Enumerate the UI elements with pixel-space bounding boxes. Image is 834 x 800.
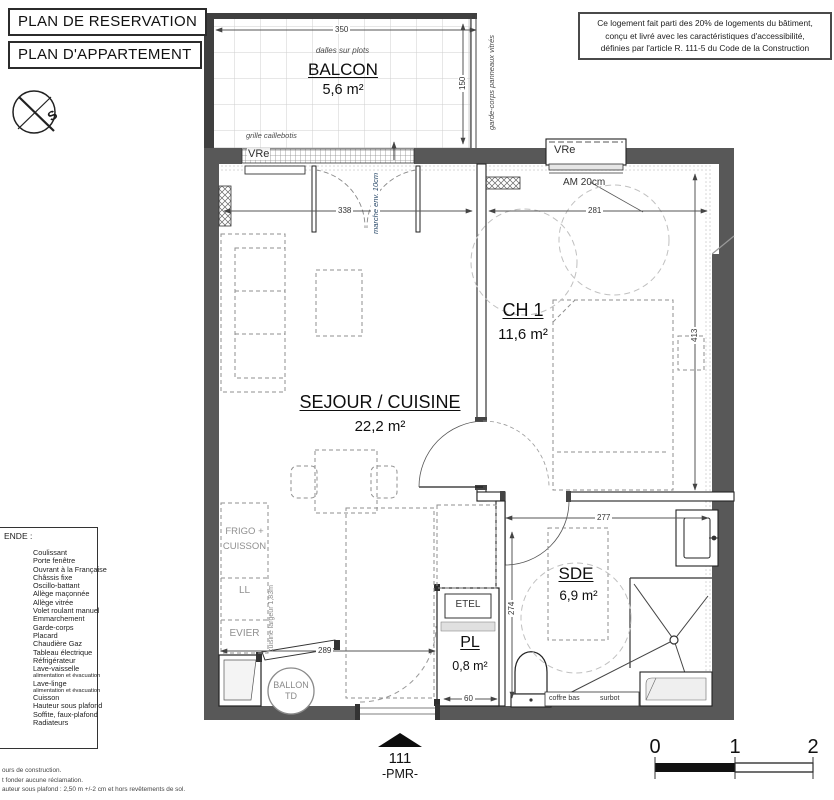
dim-ch1-depth: 413 xyxy=(690,327,699,344)
dim-entry-depth: 274 xyxy=(507,600,516,617)
legend-item: Lave-linge xyxy=(33,680,143,688)
surbot-label: surbot xyxy=(600,695,619,702)
floor-plan-page: { "titles": { "reservation": "PLAN DE RE… xyxy=(0,0,834,800)
dim-ch1-width: 281 xyxy=(586,206,603,215)
plan-reservation-title: PLAN DE RESERVATION xyxy=(8,8,207,36)
lot-number: 111 xyxy=(375,750,425,767)
legend-items: Coulissant Porte fenêtre Ouvrant à la Fr… xyxy=(33,549,143,727)
fine-print-line: ours de construction. xyxy=(2,766,185,776)
vre-shutter-label-left: VRe xyxy=(247,148,270,160)
room-balcon-area: 5,6 m² xyxy=(302,82,384,98)
room-sejour-name: SEJOUR / CUISINE xyxy=(295,392,465,413)
dim-sde-width: 277 xyxy=(595,513,612,522)
accessibility-note-line: définies par l'article R. 111-5 du Code … xyxy=(582,42,828,55)
room-sde-name: SDE xyxy=(541,564,611,584)
marche-label: marche env. 10cm xyxy=(371,172,380,235)
frigo-label: FRIGO + xyxy=(221,526,268,537)
balcony-dalles-label: dalles sur plots xyxy=(300,46,385,55)
radiators xyxy=(219,177,520,226)
ballon-label: BALLON xyxy=(266,680,316,690)
coffre-bas-label: coffre bas xyxy=(549,695,580,702)
dim-pl-width: 60 xyxy=(462,694,475,703)
garde-corps-label: garde-corps panneaux vitrés xyxy=(487,35,496,130)
room-balcon-name: BALCON xyxy=(302,60,384,80)
accessibility-note: Ce logement fait parti des 20% de logeme… xyxy=(578,12,832,60)
accessibility-note-line: conçu et livré avec les caractéristiques… xyxy=(582,30,828,43)
scale-bar xyxy=(655,757,813,779)
dim-kitchen-width: 289 xyxy=(316,646,333,655)
grille-caillebotis-label: grille caillebotis xyxy=(246,131,297,140)
fine-print: ours de construction. t fonder aucune ré… xyxy=(2,766,185,795)
lave-linge-label: LL xyxy=(221,585,268,596)
plan-apartment-title: PLAN D'APPARTEMENT xyxy=(8,41,202,69)
etel-label: ETEL xyxy=(445,599,491,610)
room-pl-area: 0,8 m² xyxy=(438,659,502,673)
vre-shutter-label-right: VRe xyxy=(553,144,576,156)
fine-print-line: auteur sous plafond : 2,50 m +/-2 cm et … xyxy=(2,785,185,795)
room-ch1-area: 11,6 m² xyxy=(478,326,568,343)
room-sejour-area: 22,2 m² xyxy=(295,418,465,435)
fine-print-line: t fonder aucune réclamation. xyxy=(2,776,185,786)
legend-title: ENDE : xyxy=(4,531,32,541)
entrance-door xyxy=(355,626,440,720)
cuisine-largeur-label: cuisine largeur 1,83m xyxy=(268,585,275,652)
dim-balcony-depth: 150 xyxy=(458,75,467,92)
am20-label: AM 20cm xyxy=(563,177,605,188)
room-pl-name: PL xyxy=(442,634,498,652)
accessibility-note-line: Ce logement fait parti des 20% de logeme… xyxy=(582,17,828,30)
dim-sejour-width: 338 xyxy=(336,206,353,215)
scale-tick-0: 0 xyxy=(645,736,665,759)
ballon-td-label: TD xyxy=(266,691,316,701)
cuisson-label: CUISSON xyxy=(221,541,268,552)
dim-balcony-width: 350 xyxy=(333,25,350,34)
scale-tick-1: 1 xyxy=(725,736,745,759)
pmr-tag: -PMR- xyxy=(370,767,430,781)
legend-item: Lave-vaisselle xyxy=(33,665,143,673)
entrance-arrow-icon xyxy=(378,733,422,747)
room-ch1-name: CH 1 xyxy=(488,300,558,321)
legend-item: Radiateurs xyxy=(33,719,143,727)
scale-tick-2: 2 xyxy=(803,736,823,759)
room-sde-area: 6,9 m² xyxy=(541,588,616,603)
evier-label: EVIER xyxy=(221,628,268,639)
